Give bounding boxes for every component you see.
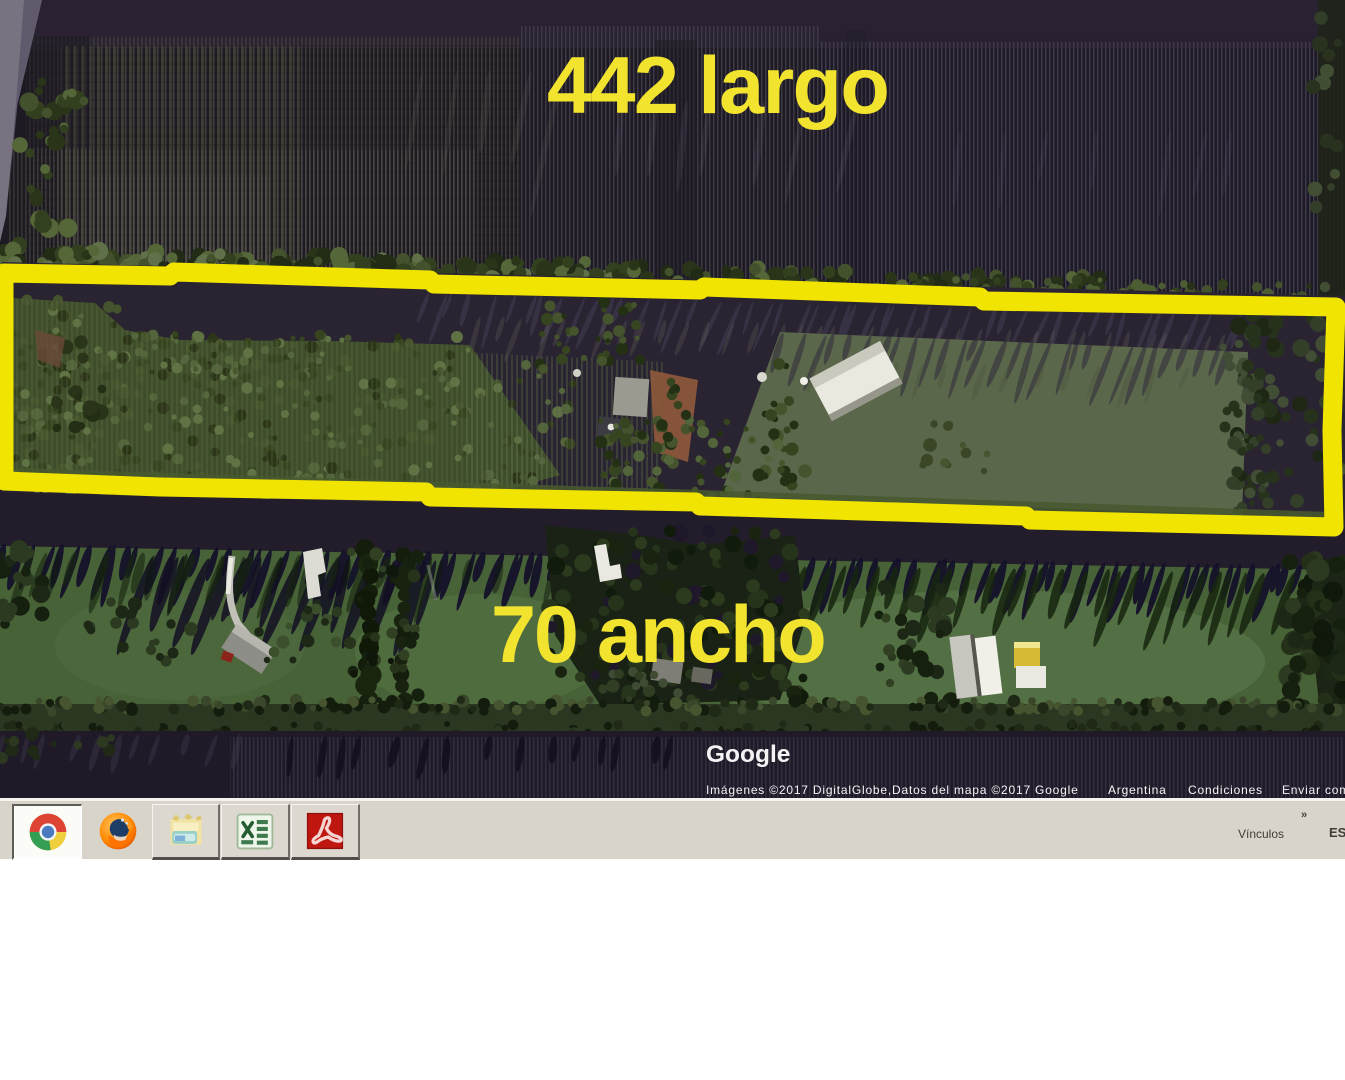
- svg-text:70 ancho: 70 ancho: [491, 590, 825, 680]
- svg-text:Imágenes ©2017 DigitalGlobe,Da: Imágenes ©2017 DigitalGlobe,Datos del ma…: [706, 783, 1079, 797]
- svg-text:Enviar com: Enviar com: [1282, 783, 1345, 797]
- svg-text:Google: Google: [706, 741, 790, 768]
- svg-text:442 largo: 442 largo: [547, 41, 888, 131]
- svg-text:Condiciones: Condiciones: [1188, 783, 1263, 797]
- svg-text:Argentina: Argentina: [1108, 783, 1167, 797]
